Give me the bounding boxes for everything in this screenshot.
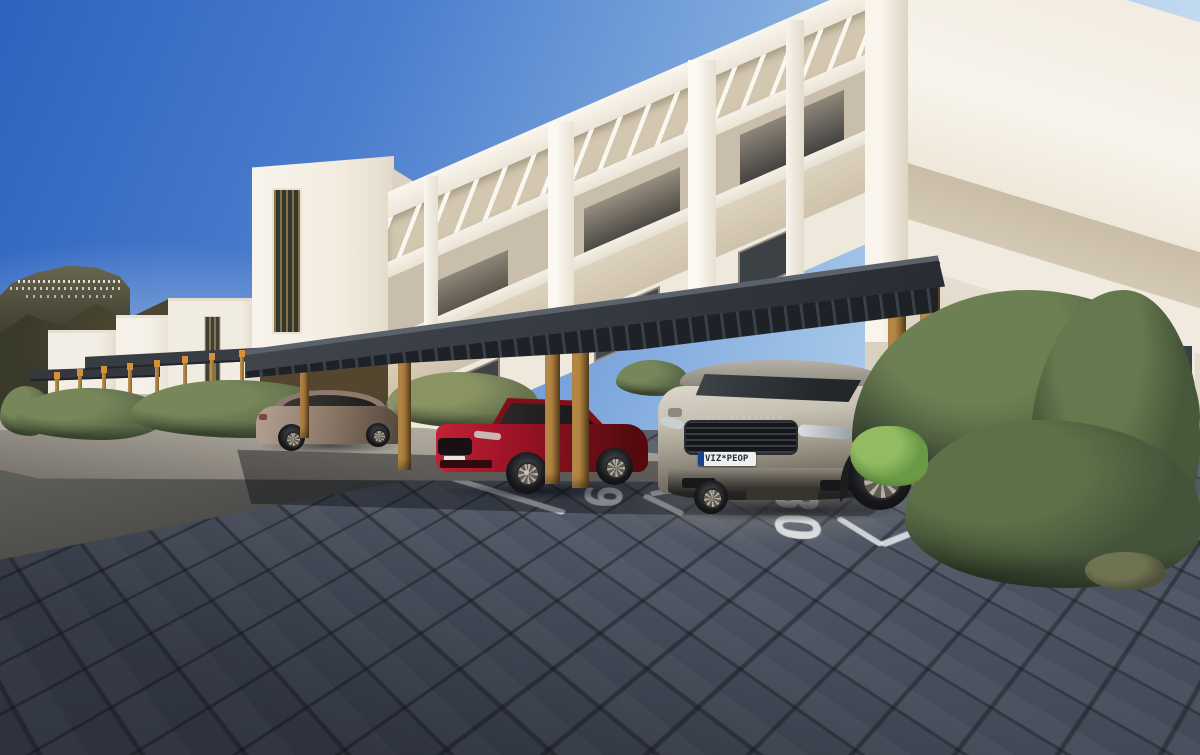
plate-text: VIZ*PEOP [705,454,755,464]
license-plate: VIZ*PEOP [698,452,756,466]
side-mirror [668,408,682,417]
village-dots [26,295,112,298]
car-grille [438,438,472,455]
facade-column [688,60,716,294]
dry-plant [1085,552,1165,590]
wheel-rim [702,488,723,509]
tower-louver-window [274,190,300,332]
village-dots [18,280,120,283]
plate-eu-strip [698,452,704,466]
wheel-hub [524,470,529,475]
facade-column [424,176,438,330]
facade-column [548,122,574,314]
carport-post [398,358,411,470]
carport-post [572,340,589,488]
red-coupe [436,398,652,504]
taillight [259,414,267,420]
render-scene: 29 30 [0,0,1200,755]
bumper-intake [440,460,492,468]
facade-column [786,20,804,282]
bronze-hatchback [256,390,406,456]
wheel-rim [372,429,387,444]
carport-post [545,344,560,484]
skid-plate [746,490,818,500]
hood-badge-text [700,415,784,419]
village-dots [10,287,122,290]
car-grille [686,422,796,453]
wheel-rim [605,457,627,479]
